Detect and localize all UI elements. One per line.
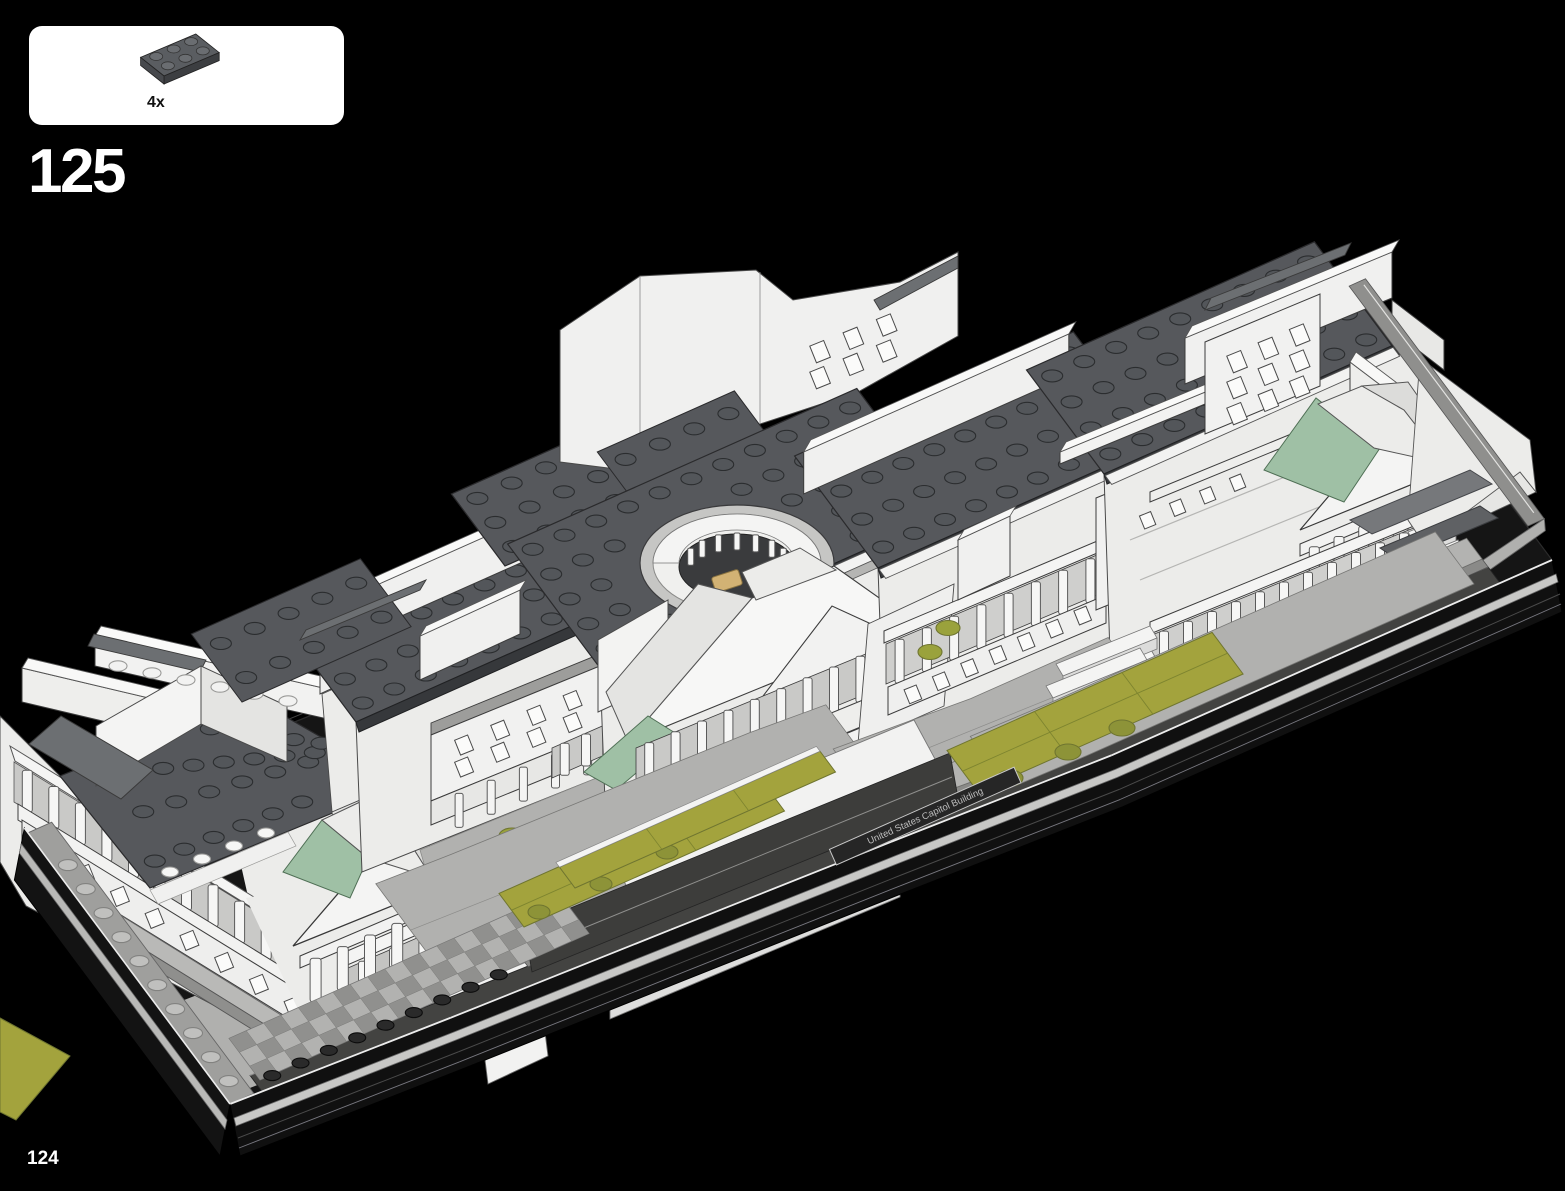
svg-text:125: 125 [28, 137, 125, 206]
svg-text:124: 124 [27, 1148, 59, 1169]
svg-text:4x: 4x [147, 94, 165, 111]
